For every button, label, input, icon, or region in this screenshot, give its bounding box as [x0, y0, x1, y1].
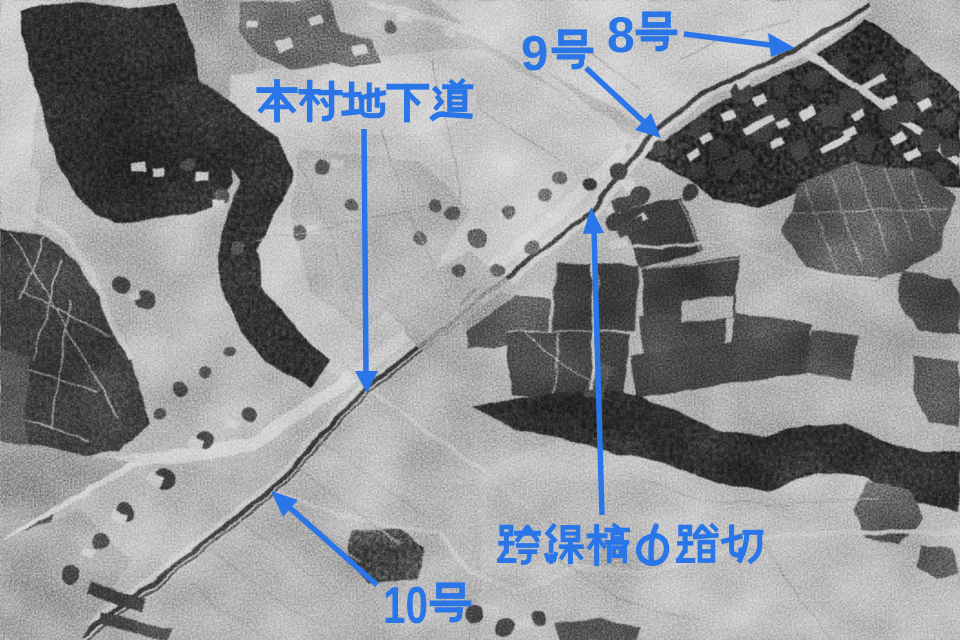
- svg-text:8: 8: [607, 7, 635, 63]
- svg-text:10: 10: [383, 577, 428, 635]
- svg-text:9: 9: [521, 27, 548, 81]
